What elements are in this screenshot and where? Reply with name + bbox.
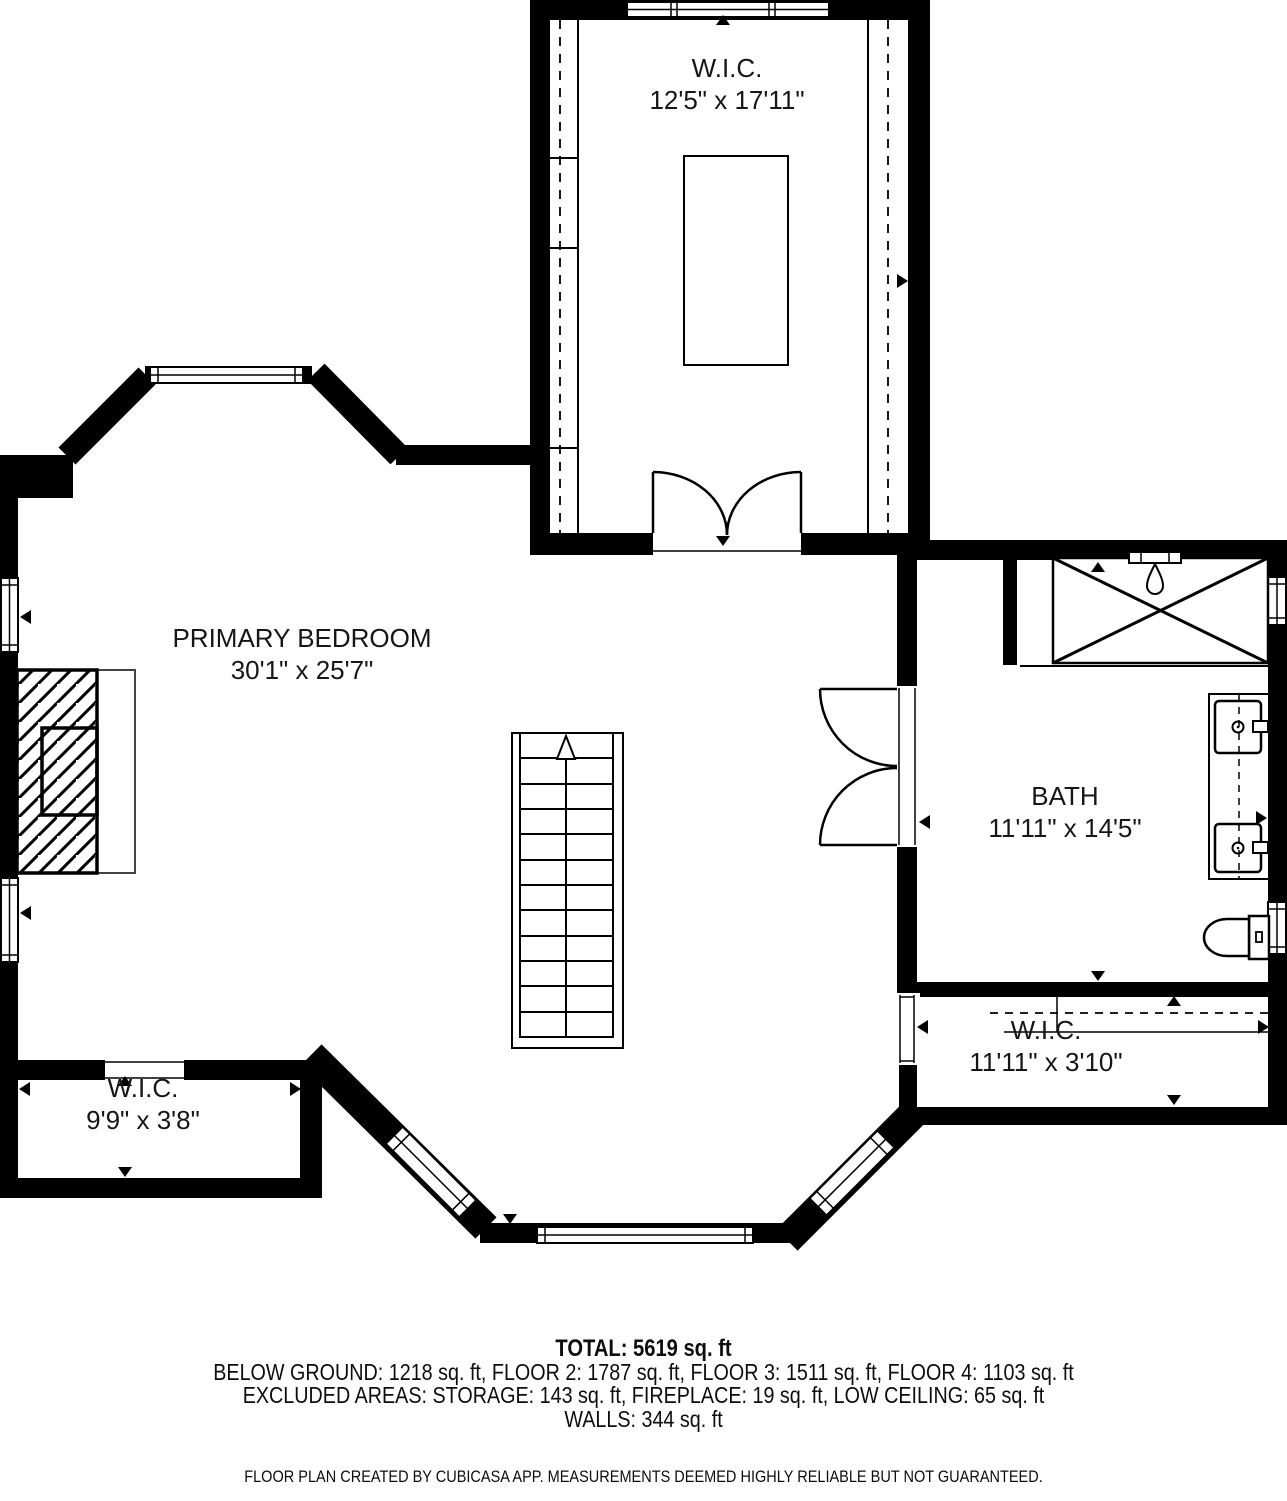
window [537, 1227, 753, 1243]
window [1268, 577, 1286, 625]
area-summary: TOTAL: 5619 sq. ft BELOW GROUND: 1218 sq… [103, 1337, 1184, 1431]
room-name: W.I.C. [692, 53, 763, 83]
floor-plan-canvas: W.I.C. 12'5" x 17'11" PRIMARY BEDROOM 30… [0, 0, 1287, 1501]
window [150, 367, 303, 383]
window [1268, 902, 1286, 954]
toilet-icon [1204, 916, 1269, 959]
window [810, 1131, 895, 1216]
floor-plan-drawing [0, 0, 1287, 1501]
floor-areas: BELOW GROUND: 1218 sq. ft, FLOOR 2: 1787… [103, 1361, 1184, 1385]
room-dimensions: 11'11" x 14'5" [988, 812, 1141, 844]
closet-island [684, 156, 788, 365]
room-dimensions: 9'9" x 3'8" [86, 1104, 200, 1136]
measure-arrow [897, 274, 908, 288]
excluded-areas: EXCLUDED AREAS: STORAGE: 143 sq. ft, FIR… [103, 1384, 1184, 1408]
total-area: TOTAL: 5619 sq. ft [103, 1337, 1184, 1361]
room-label-wic-right: W.I.C. 11'11" x 3'10" [969, 1014, 1122, 1078]
room-name: W.I.C. [1011, 1015, 1082, 1045]
room-dimensions: 30'1" x 25'7" [172, 654, 431, 686]
measure-arrow [1167, 996, 1181, 1006]
measure-arrow [1091, 971, 1105, 981]
room-label-wic-top: W.I.C. 12'5" x 17'11" [649, 52, 804, 116]
room-name: BATH [1031, 781, 1098, 811]
measure-arrow [20, 610, 31, 624]
window [1, 878, 18, 962]
window [1, 578, 18, 652]
vanity-double-sink [1209, 694, 1269, 879]
room-label-wic-left: W.I.C. 9'9" x 3'8" [86, 1072, 200, 1136]
room-dimensions: 11'11" x 3'10" [969, 1046, 1122, 1078]
window [386, 1127, 477, 1218]
measure-arrow [290, 1082, 301, 1096]
room-label-primary-bedroom: PRIMARY BEDROOM 30'1" x 25'7" [172, 622, 431, 686]
walls-area: WALLS: 344 sq. ft [103, 1408, 1184, 1432]
fireplace [17, 670, 135, 873]
window [627, 2, 829, 17]
measure-arrow [20, 906, 31, 920]
room-dimensions: 12'5" x 17'11" [649, 84, 804, 116]
room-name: PRIMARY BEDROOM [172, 623, 431, 653]
room-label-bath: BATH 11'11" x 14'5" [988, 780, 1141, 844]
measure-arrow [503, 1214, 517, 1224]
measure-arrow [118, 1167, 132, 1177]
measure-arrow [919, 815, 930, 829]
measure-arrow [19, 1082, 30, 1096]
room-name: W.I.C. [108, 1073, 179, 1103]
staircase [512, 733, 623, 1048]
shower [1020, 558, 1268, 666]
door-opening [895, 686, 919, 847]
measure-arrow [1167, 1095, 1181, 1105]
double-door-wic [653, 472, 801, 535]
disclaimer: FLOOR PLAN CREATED BY CUBICASA APP. MEAS… [77, 1468, 1210, 1487]
wall-opening [896, 993, 920, 1065]
double-door-bath [820, 689, 897, 845]
